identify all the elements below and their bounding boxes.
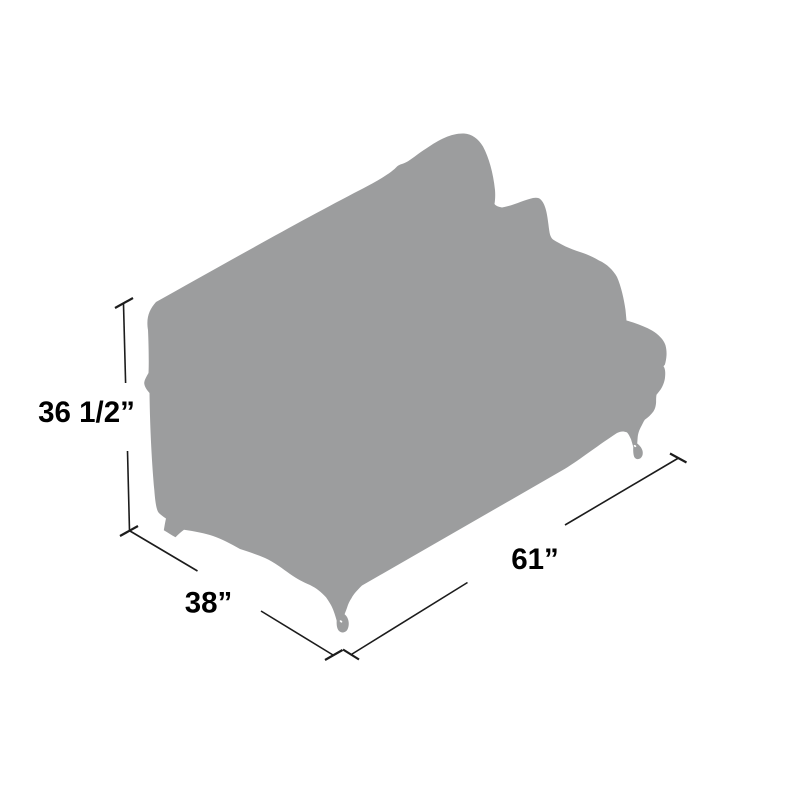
- svg-text:36 1/2”: 36 1/2”: [38, 396, 135, 429]
- svg-text:61”: 61”: [511, 543, 559, 576]
- svg-text:38”: 38”: [185, 587, 233, 620]
